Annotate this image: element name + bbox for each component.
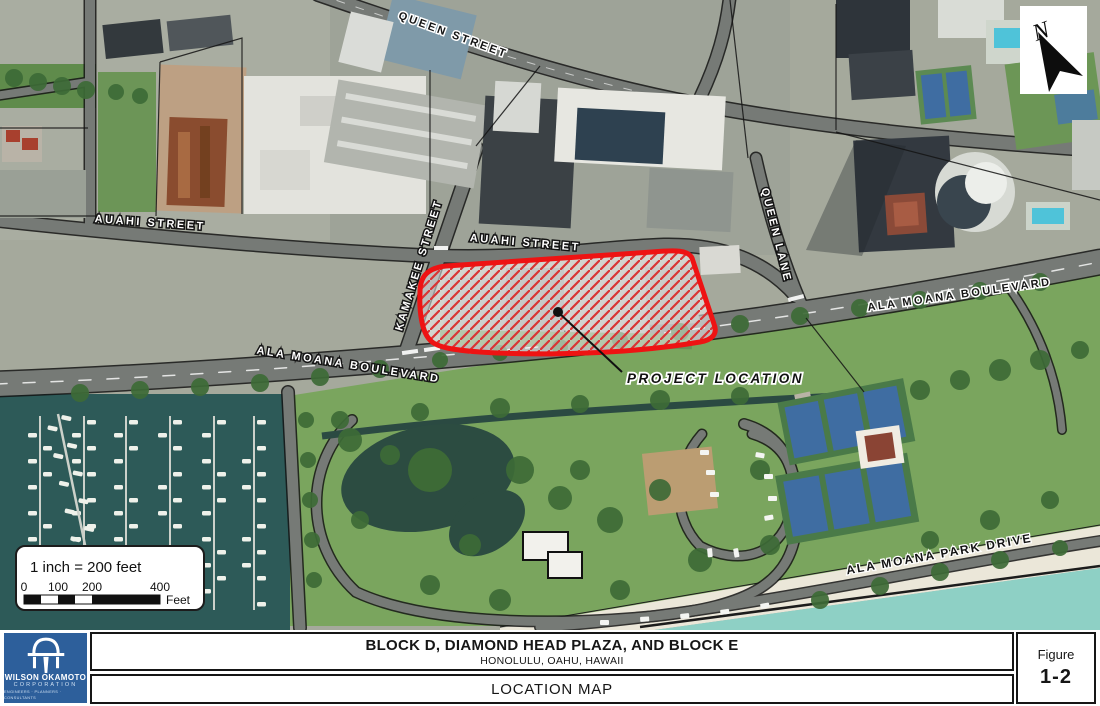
figure-number-box: Figure 1-2 [1016,632,1096,704]
figure-number: 1-2 [1040,666,1072,689]
scale-tick-100: 100 [48,580,68,594]
figure-subtitle: HONOLULU, OAHU, HAWAII [480,655,624,667]
scale-caption: 1 inch = 200 feet [30,559,142,576]
scale-bar-segments [24,595,160,604]
logo-glyph-icon [20,633,72,673]
north-arrow: N [1020,6,1087,94]
logo-company-name: WILSON OKAMOTO [5,673,86,682]
map-type-label: LOCATION MAP [491,681,613,698]
location-map-canvas: QUEEN STREET AUAHI STREET KAMAKEE STREET… [0,0,1100,632]
scale-tick-400: 400 [150,580,170,594]
scale-unit: Feet [166,593,191,607]
scale-tick-200: 200 [82,580,102,594]
logo-corporation: CORPORATION [14,682,78,689]
figure-title: BLOCK D, DIAMOND HEAD PLAZA, AND BLOCK E [365,637,738,654]
scale-tick-0: 0 [21,580,28,594]
project-location-label: PROJECT LOCATION [627,371,804,386]
title-block: WILSON OKAMOTO CORPORATION ENGINEERS · P… [0,630,1100,706]
logo-tagline: ENGINEERS · PLANNERS · CONSULTANTS [4,689,87,701]
title-box: BLOCK D, DIAMOND HEAD PLAZA, AND BLOCK E… [90,632,1014,671]
figure-page: QUEEN STREET AUAHI STREET KAMAKEE STREET… [0,0,1100,706]
map-type-box: LOCATION MAP [90,674,1014,704]
company-logo: WILSON OKAMOTO CORPORATION ENGINEERS · P… [4,633,87,703]
scale-bar: 1 inch = 200 feet 0 100 200 400 Feet [16,546,204,610]
project-leader-dot [553,307,563,317]
figure-label: Figure [1038,647,1075,662]
